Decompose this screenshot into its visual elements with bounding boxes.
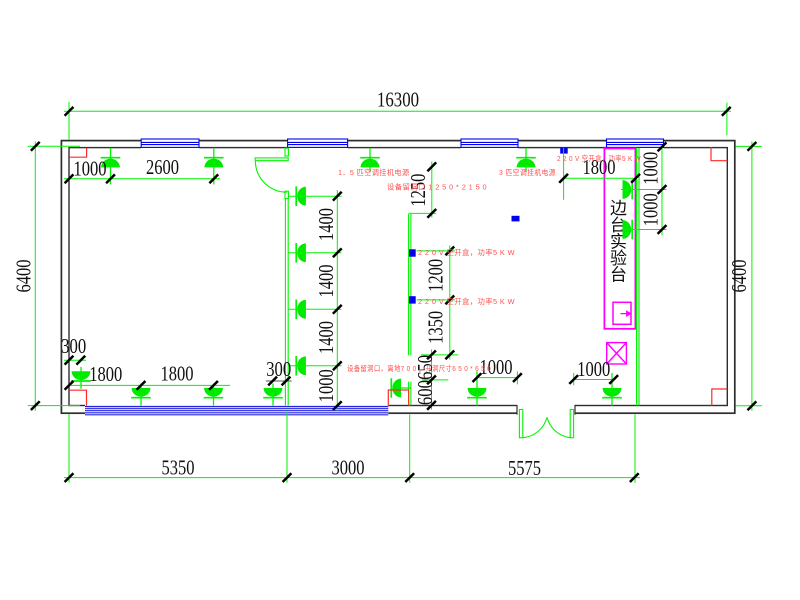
svg-text:3 匹空调挂机电源: 3 匹空调挂机电源 [499, 167, 556, 177]
svg-text:1．5 匹空调挂机电源: 1．5 匹空调挂机电源 [338, 167, 410, 177]
svg-text:2 2 0 V 空开盒，功率5 K W: 2 2 0 V 空开盒，功率5 K W [557, 153, 641, 163]
svg-text:600: 600 [413, 380, 437, 405]
svg-text:5350: 5350 [162, 456, 195, 480]
svg-text:300: 300 [266, 357, 291, 381]
svg-text:1000: 1000 [314, 369, 338, 402]
svg-text:1800: 1800 [161, 361, 194, 385]
svg-text:设备留洞口，离地7 0 0 。开洞尺寸6 5 0 * 6 5: 设备留洞口，离地7 0 0 。开洞尺寸6 5 0 * 6 5 0 [347, 363, 491, 373]
svg-text:1000: 1000 [639, 152, 663, 185]
svg-text:1800: 1800 [89, 362, 122, 386]
svg-text:1400: 1400 [314, 208, 338, 241]
svg-text:1400: 1400 [314, 321, 338, 354]
svg-text:6400: 6400 [727, 260, 751, 293]
svg-text:1200: 1200 [423, 259, 447, 292]
svg-text:16300: 16300 [377, 87, 419, 111]
svg-text:2600: 2600 [146, 155, 179, 179]
svg-text:设备留洞口 1 2 5 0 * 2 1 5 0: 设备留洞口 1 2 5 0 * 2 1 5 0 [387, 181, 487, 191]
svg-text:台: 台 [610, 266, 627, 285]
svg-text:300: 300 [61, 334, 86, 358]
svg-text:3000: 3000 [332, 456, 365, 480]
svg-text:5575: 5575 [508, 456, 541, 480]
svg-text:2 2 0 V 空开盒，功率5 K W: 2 2 0 V 空开盒，功率5 K W [418, 247, 516, 257]
svg-text:2 2 0 V 空开盒，功率5 K W: 2 2 0 V 空开盒，功率5 K W [418, 296, 516, 306]
svg-text:1000: 1000 [74, 156, 107, 180]
svg-text:1000: 1000 [639, 193, 663, 226]
svg-text:1350: 1350 [423, 311, 447, 344]
svg-text:6400: 6400 [11, 260, 35, 293]
svg-text:1000: 1000 [577, 357, 610, 381]
svg-text:1400: 1400 [314, 265, 338, 298]
